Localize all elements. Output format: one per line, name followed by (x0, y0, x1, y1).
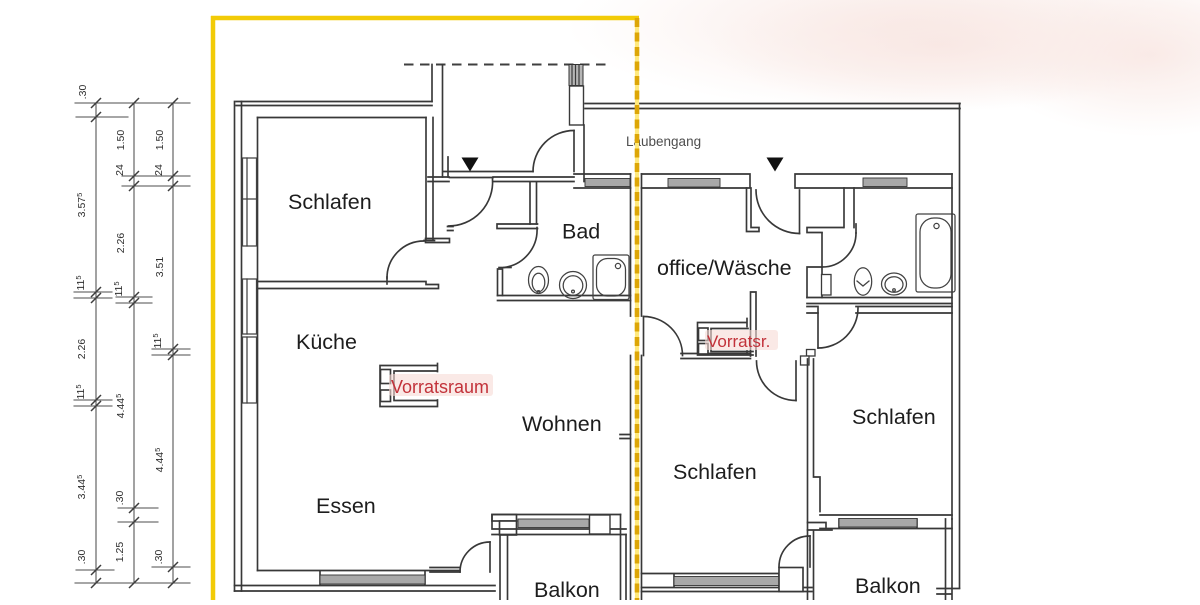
svg-text:.30: .30 (77, 85, 89, 100)
svg-text:office/Wäsche: office/Wäsche (657, 256, 792, 280)
svg-text:.30: .30 (76, 550, 88, 565)
svg-text:Wohnen: Wohnen (522, 412, 602, 436)
svg-text:2.26: 2.26 (76, 339, 88, 360)
svg-text:Schlafen: Schlafen (852, 405, 936, 429)
svg-text:Vorratsr.: Vorratsr. (707, 332, 770, 351)
svg-text:Vorratsraum: Vorratsraum (391, 377, 489, 397)
svg-text:Bad: Bad (562, 220, 600, 244)
svg-text:1.25: 1.25 (114, 542, 126, 563)
svg-text:2.26: 2.26 (115, 233, 127, 254)
svg-text:1.50: 1.50 (115, 130, 127, 151)
svg-text:24: 24 (153, 164, 165, 176)
svg-text:Balkon: Balkon (855, 574, 921, 598)
svg-text:Schlafen: Schlafen (673, 460, 757, 484)
svg-text:Essen: Essen (316, 494, 376, 518)
svg-text:3.51: 3.51 (154, 257, 166, 278)
svg-text:1.50: 1.50 (154, 130, 166, 151)
svg-text:24: 24 (114, 164, 126, 176)
svg-text:Balkon: Balkon (534, 578, 600, 600)
svg-text:Schlafen: Schlafen (288, 190, 372, 214)
svg-text:.30: .30 (114, 491, 126, 506)
svg-text:Küche: Küche (296, 330, 357, 354)
svg-text:.30: .30 (153, 550, 165, 565)
